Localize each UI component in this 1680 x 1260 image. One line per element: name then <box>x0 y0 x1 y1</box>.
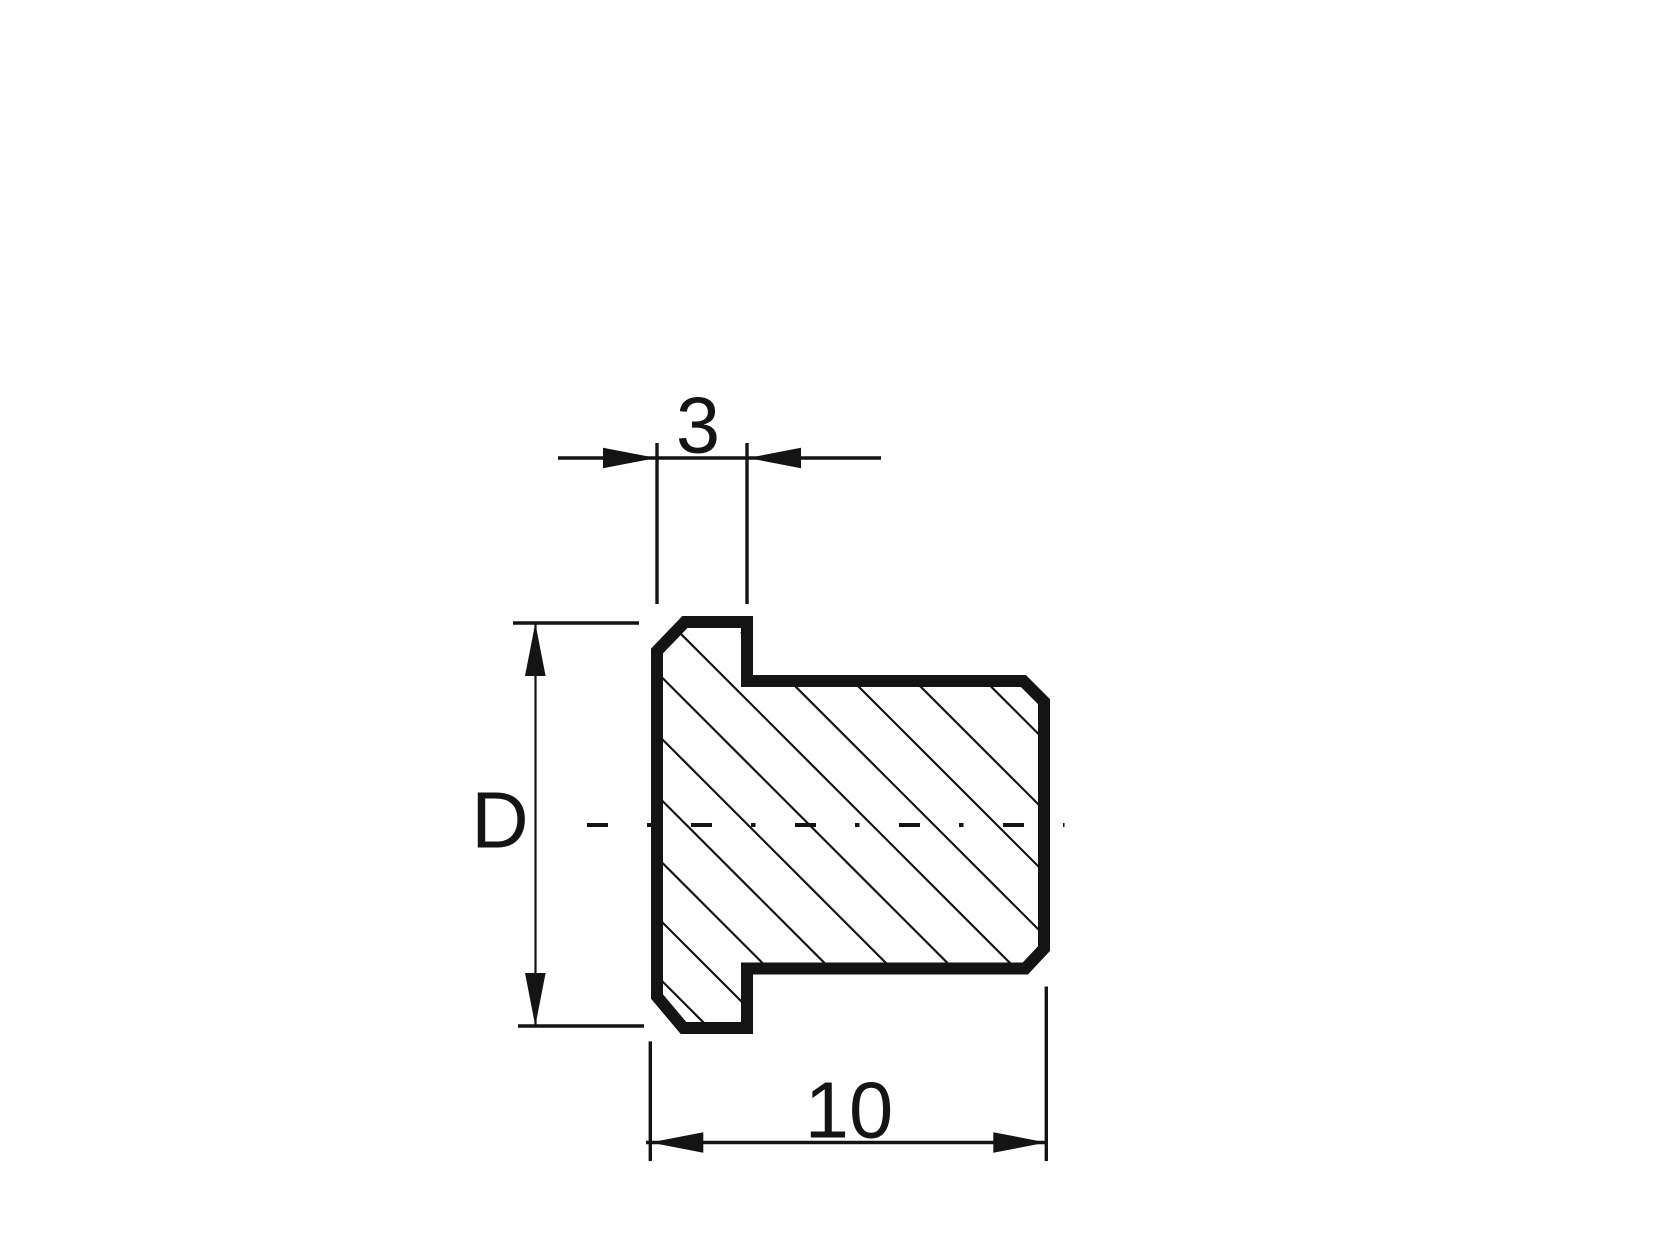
svg-text:3: 3 <box>676 381 720 470</box>
svg-text:D: D <box>471 776 528 865</box>
svg-text:10: 10 <box>805 1066 893 1155</box>
